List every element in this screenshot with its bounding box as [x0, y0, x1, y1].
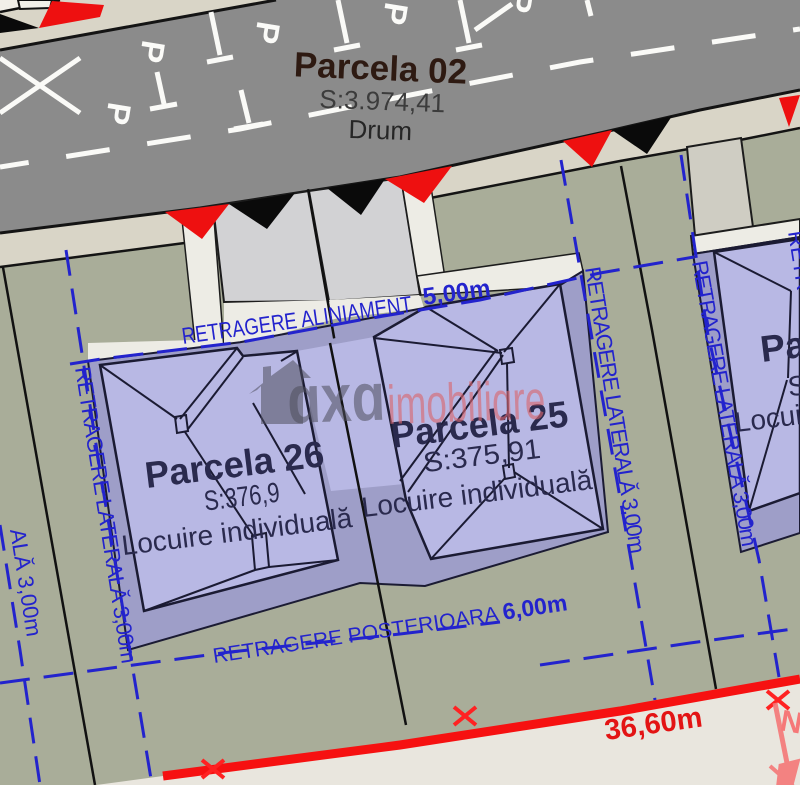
- svg-text:ɑxɑ: ɑxɑ: [286, 359, 387, 438]
- svg-text:imobiliɑre: imobiliɑre: [386, 369, 546, 436]
- svg-text:S:3.974,41: S:3.974,41: [319, 84, 446, 118]
- svg-text:Drum: Drum: [348, 114, 413, 146]
- svg-text:Pa: Pa: [758, 324, 800, 370]
